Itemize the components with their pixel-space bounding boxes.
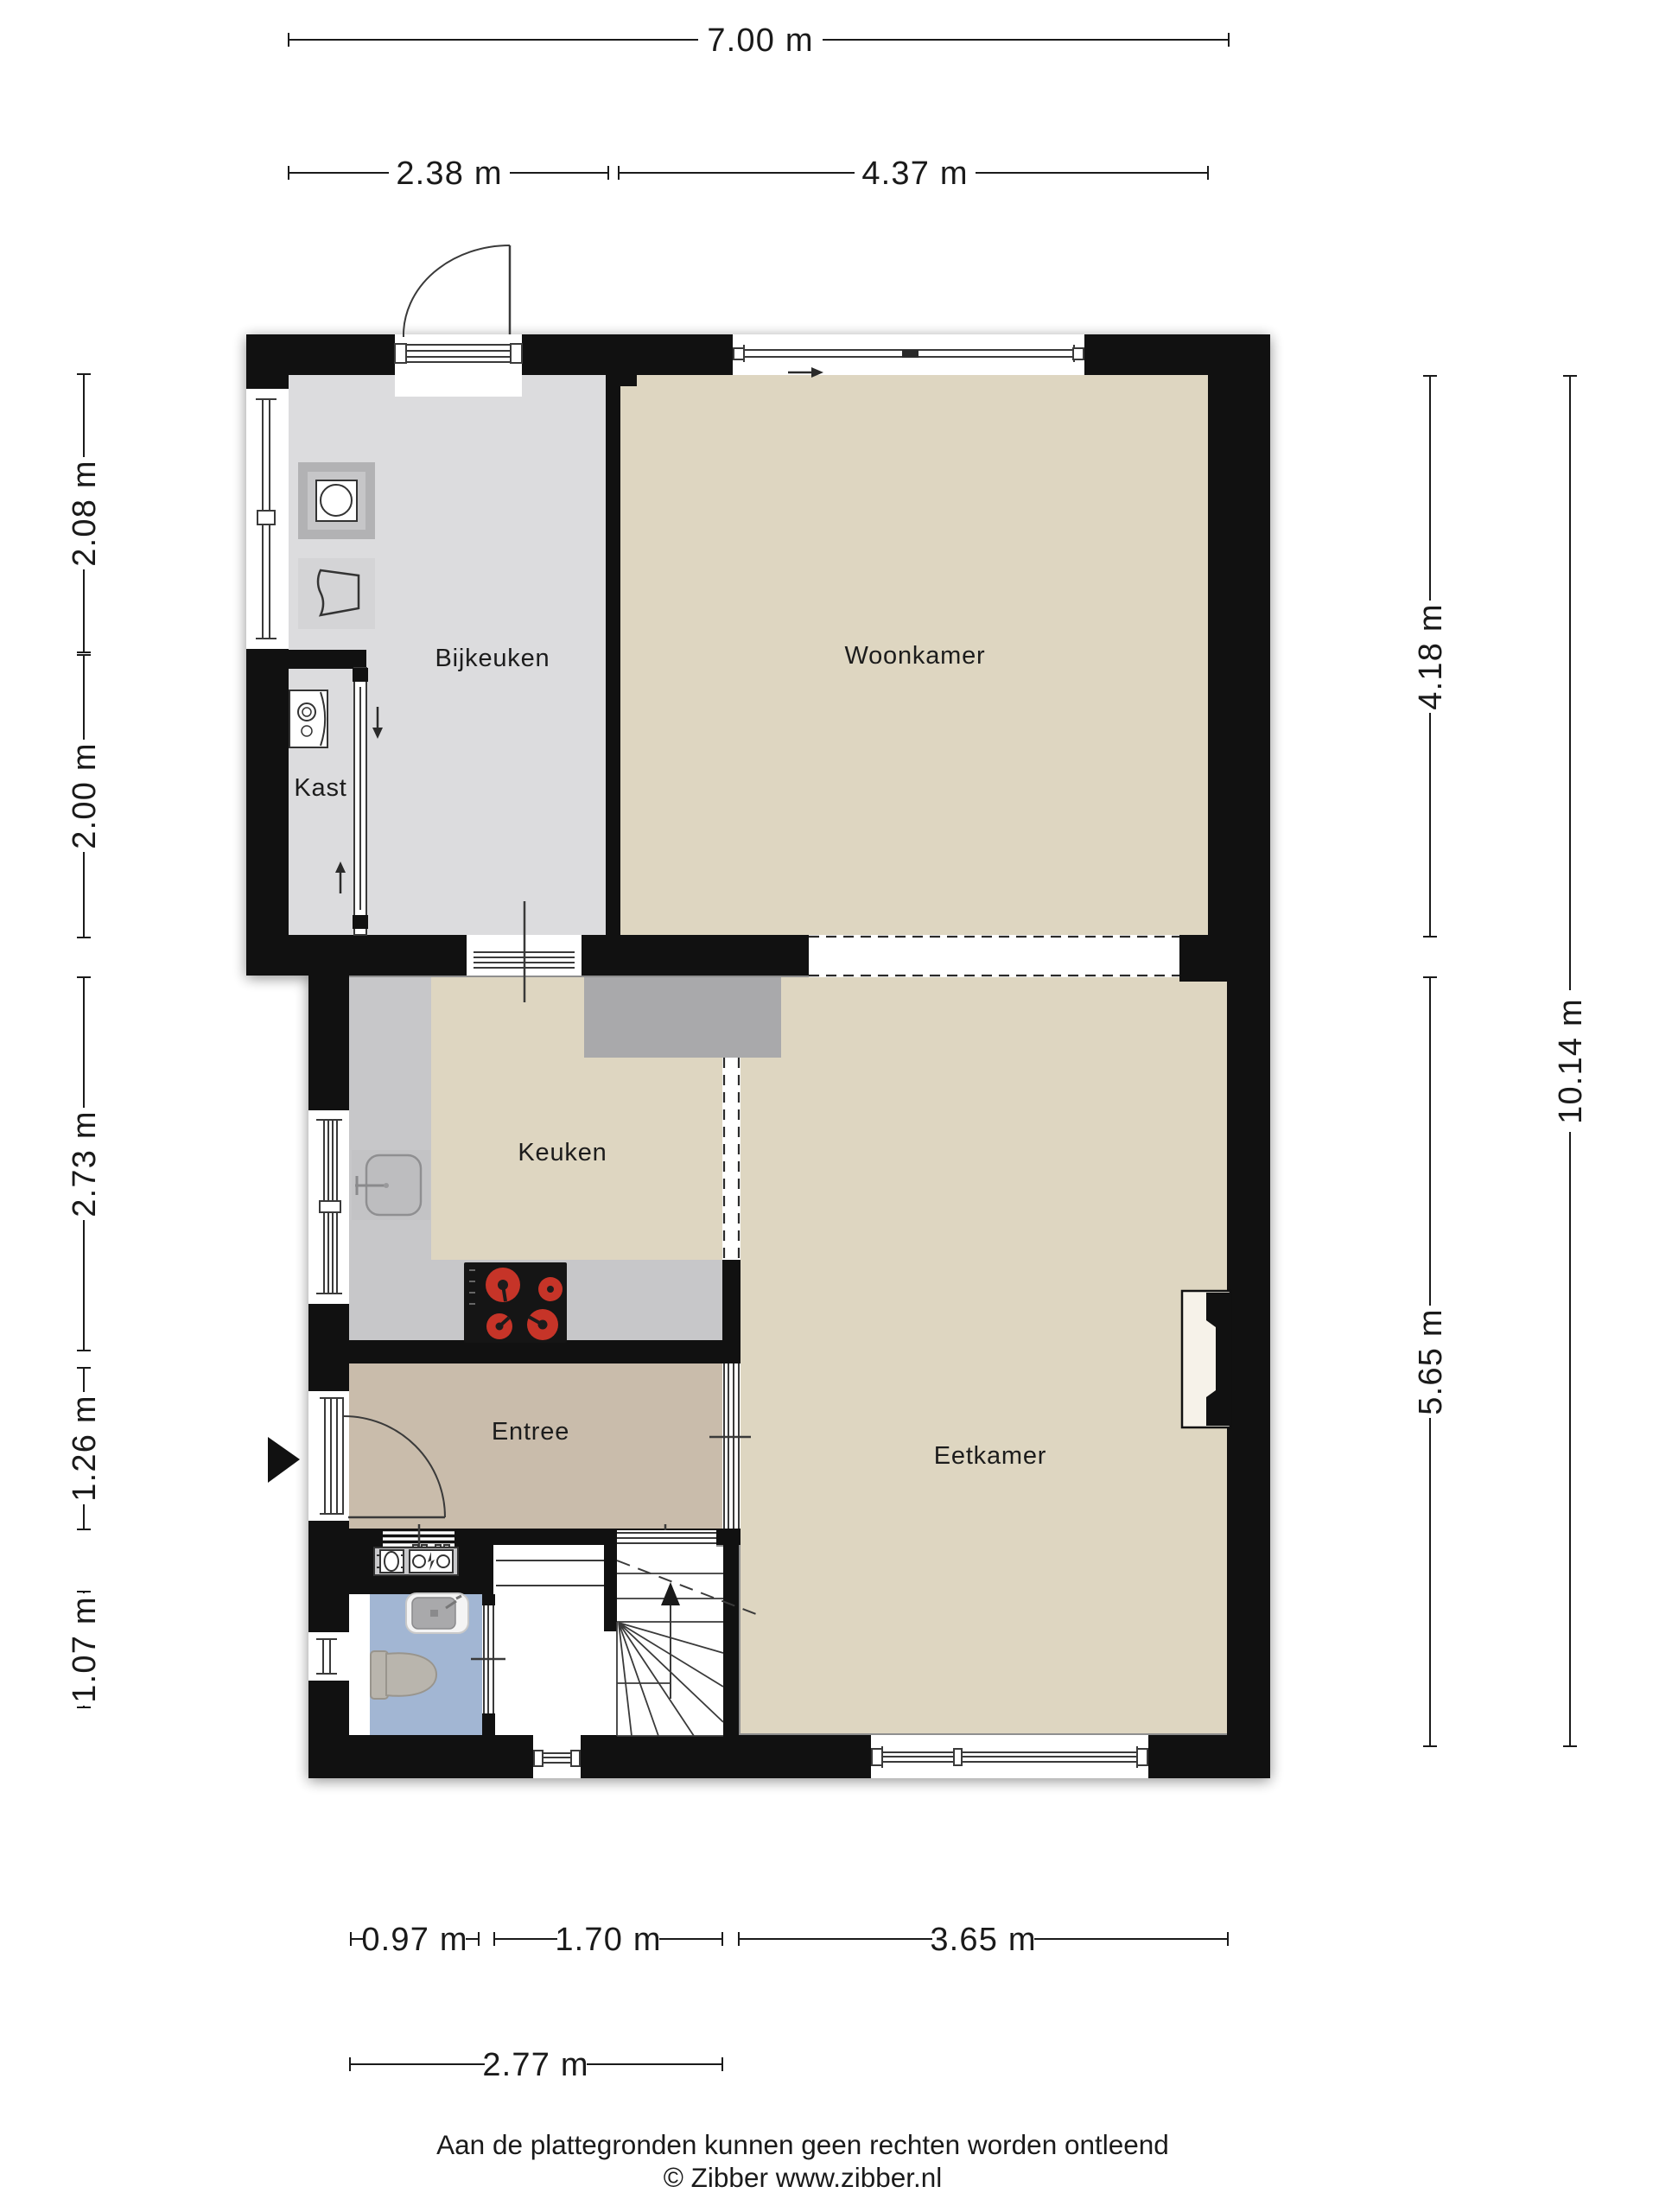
svg-text:0.97 m: 0.97 m	[361, 1922, 467, 1958]
svg-text:2.73 m: 2.73 m	[67, 1110, 103, 1217]
svg-text:2.38 m: 2.38 m	[396, 156, 502, 192]
svg-text:Kast: Kast	[294, 774, 346, 802]
svg-text:4.37 m: 4.37 m	[861, 156, 968, 192]
svg-text:7.00 m: 7.00 m	[707, 22, 813, 59]
svg-text:2.77 m: 2.77 m	[482, 2047, 588, 2083]
svg-text:2.00 m: 2.00 m	[67, 742, 103, 849]
svg-text:Woonkamer: Woonkamer	[844, 642, 985, 670]
svg-text:10.14 m: 10.14 m	[1553, 998, 1589, 1124]
svg-text:4.18 m: 4.18 m	[1413, 603, 1449, 709]
svg-text:5.65 m: 5.65 m	[1413, 1308, 1449, 1414]
svg-text:Eetkamer: Eetkamer	[934, 1442, 1047, 1470]
svg-text:Aan de plattegronden kunnen ge: Aan de plattegronden kunnen geen rechten…	[436, 2129, 1169, 2160]
svg-text:1.07 m: 1.07 m	[67, 1596, 103, 1702]
svg-text:3.65 m: 3.65 m	[930, 1922, 1036, 1958]
svg-text:Keuken: Keuken	[518, 1139, 607, 1166]
svg-text:Entree: Entree	[492, 1418, 569, 1446]
svg-text:1.26 m: 1.26 m	[67, 1395, 103, 1501]
svg-text:Bijkeuken: Bijkeuken	[435, 645, 550, 672]
svg-text:2.08 m: 2.08 m	[67, 460, 103, 566]
svg-text:© Zibber www.zibber.nl: © Zibber www.zibber.nl	[664, 2162, 943, 2193]
svg-text:1.70 m: 1.70 m	[555, 1922, 661, 1958]
